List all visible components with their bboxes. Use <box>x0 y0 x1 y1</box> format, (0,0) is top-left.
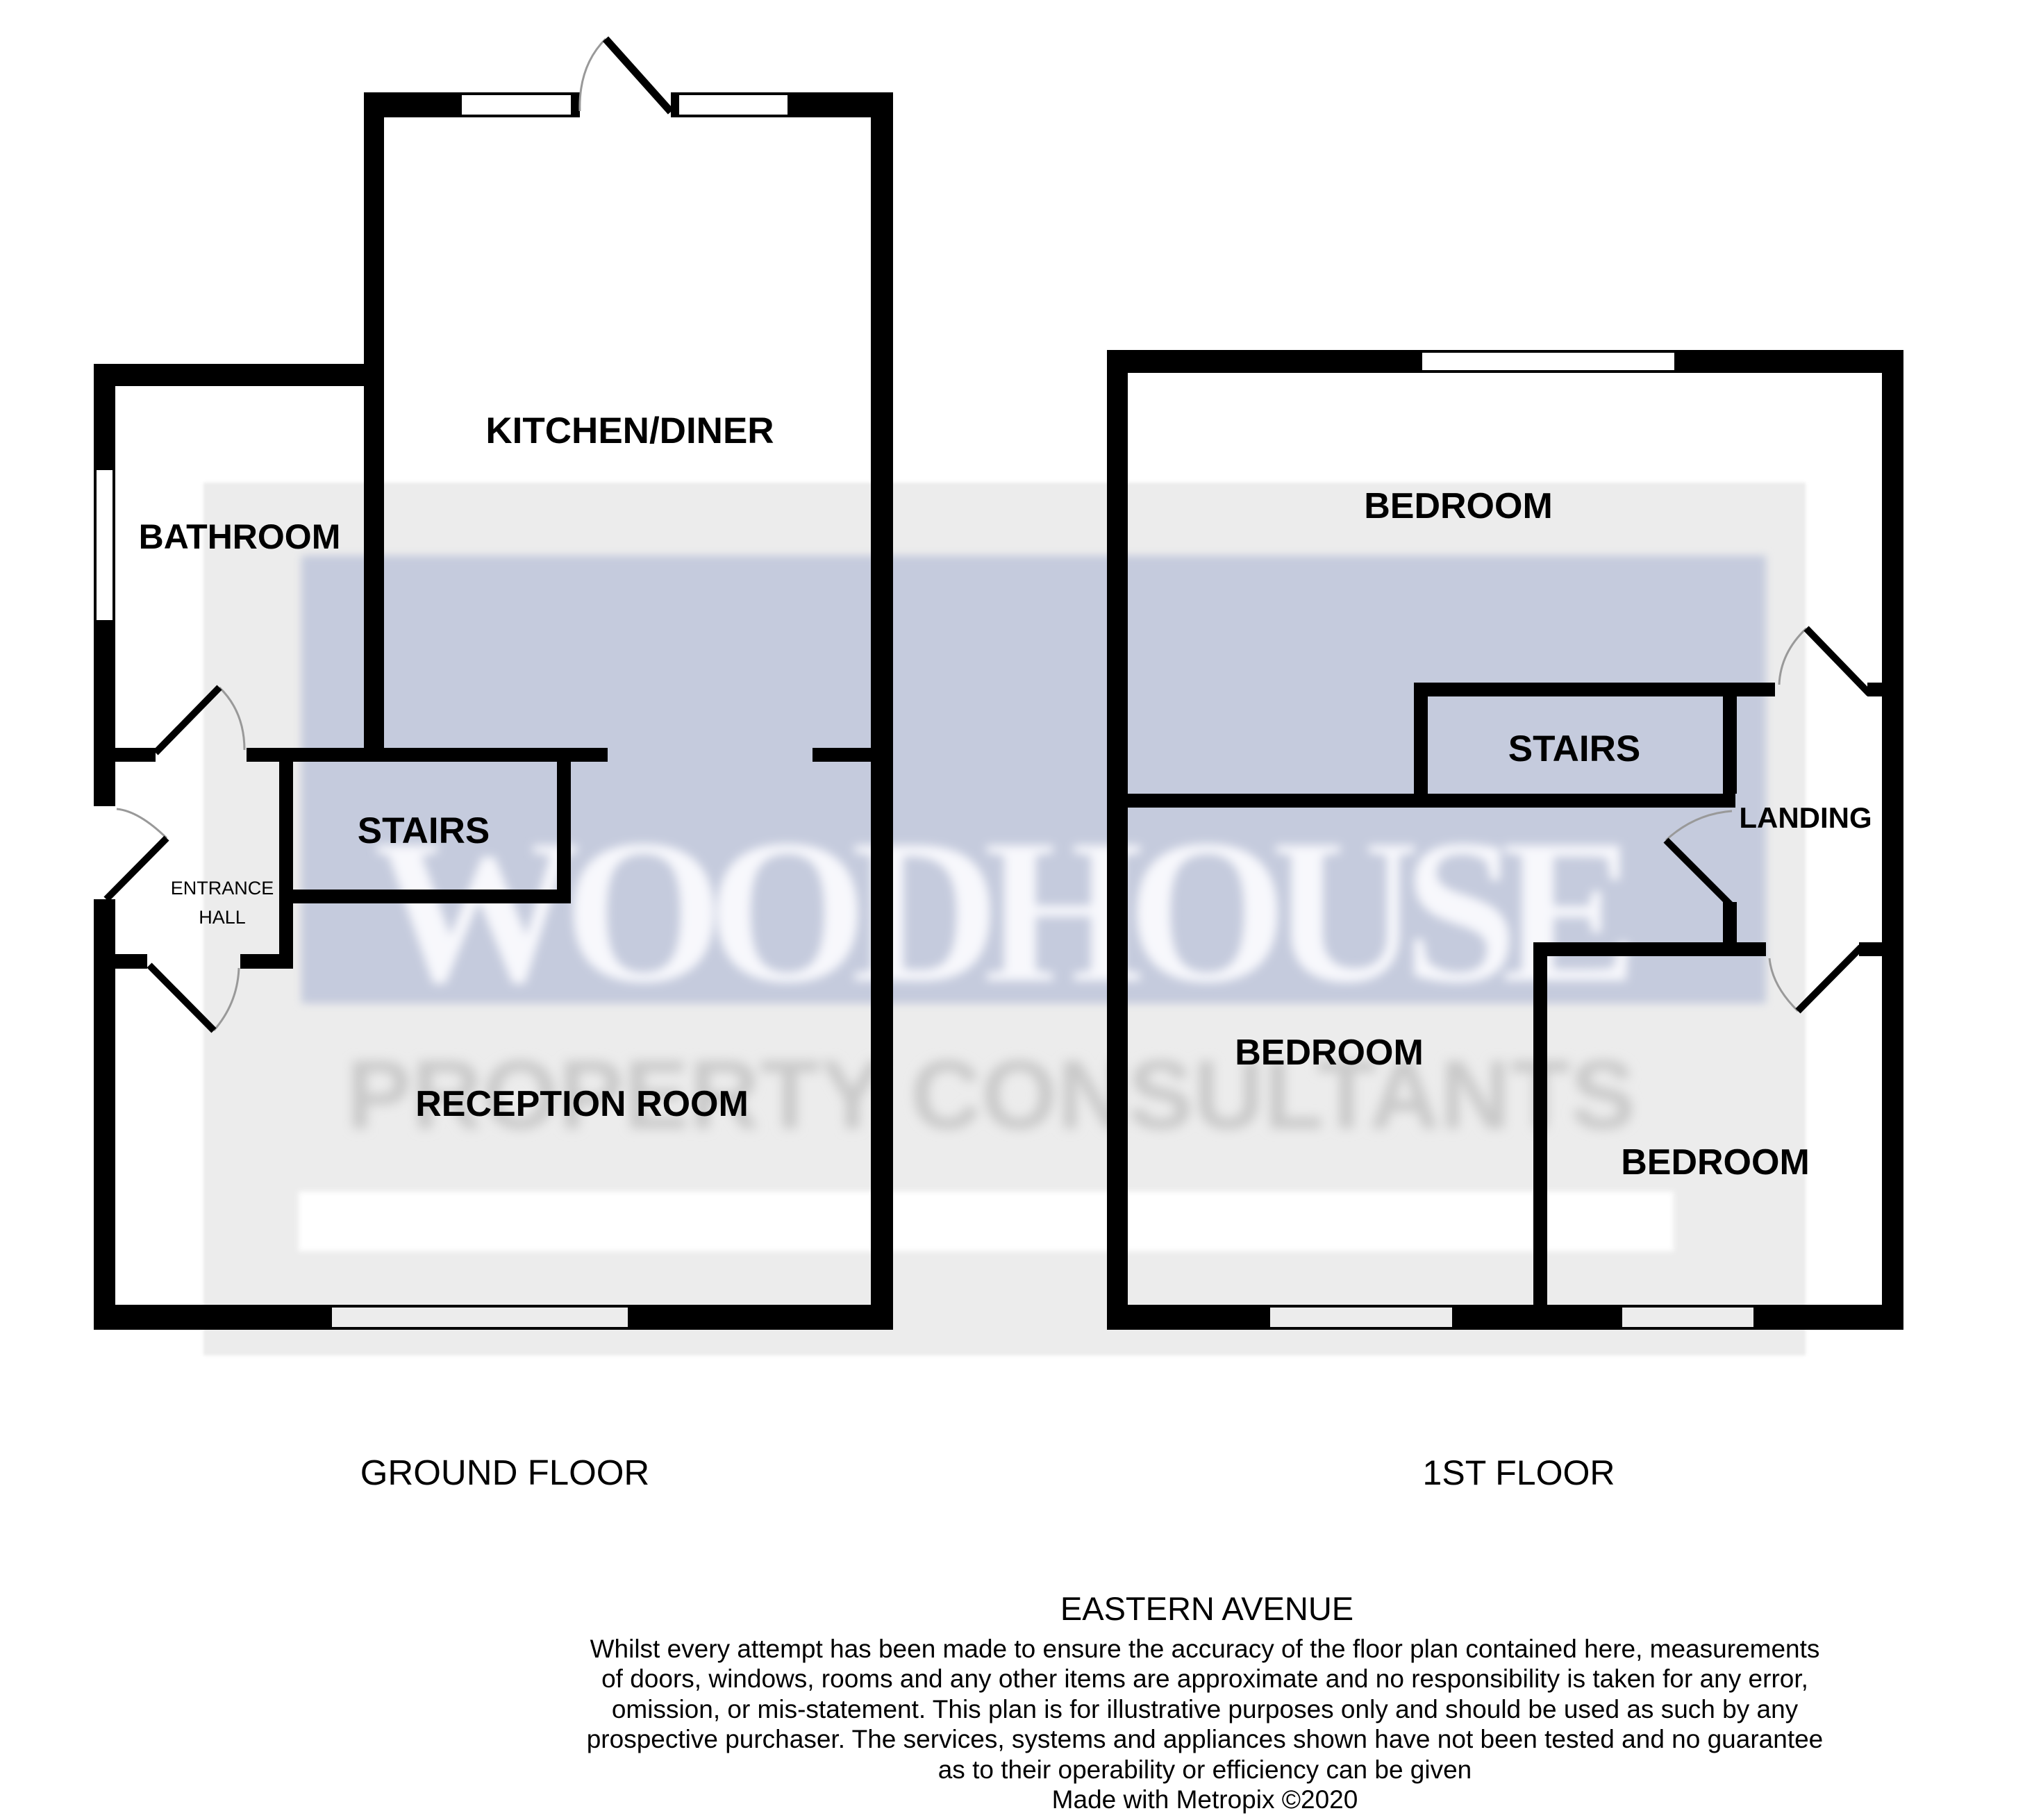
svg-text:HALL: HALL <box>199 907 246 928</box>
svg-text:STAIRS: STAIRS <box>1508 728 1640 769</box>
svg-text:as to their operability or eff: as to their operability or efficiency ca… <box>938 1755 1472 1784</box>
svg-text:1ST FLOOR: 1ST FLOOR <box>1423 1453 1615 1492</box>
svg-text:EASTERN AVENUE: EASTERN AVENUE <box>1060 1590 1353 1627</box>
svg-text:LANDING: LANDING <box>1739 801 1872 834</box>
svg-text:BEDROOM: BEDROOM <box>1235 1033 1424 1073</box>
svg-text:BEDROOM: BEDROOM <box>1364 486 1553 526</box>
svg-text:prospective purchaser. The ser: prospective purchaser. The services, sys… <box>587 1725 1824 1753</box>
svg-text:BEDROOM: BEDROOM <box>1621 1142 1810 1183</box>
svg-text:Whilst every attempt has been: Whilst every attempt has been made to en… <box>590 1635 1820 1663</box>
svg-text:STAIRS: STAIRS <box>358 810 490 851</box>
svg-text:ENTRANCE: ENTRANCE <box>171 878 274 899</box>
svg-text:KITCHEN/DINER: KITCHEN/DINER <box>485 410 774 451</box>
svg-text:of doors, windows, rooms and a: of doors, windows, rooms and any other i… <box>601 1664 1808 1693</box>
svg-text:BATHROOM: BATHROOM <box>139 517 341 556</box>
svg-text:RECEPTION ROOM: RECEPTION ROOM <box>415 1084 749 1124</box>
svg-text:Made with Metropix ©2020: Made with Metropix ©2020 <box>1052 1785 1358 1814</box>
svg-text:omission, or mis-statement. Th: omission, or mis-statement. This plan is… <box>612 1695 1799 1723</box>
svg-text:GROUND FLOOR: GROUND FLOOR <box>360 1453 650 1492</box>
